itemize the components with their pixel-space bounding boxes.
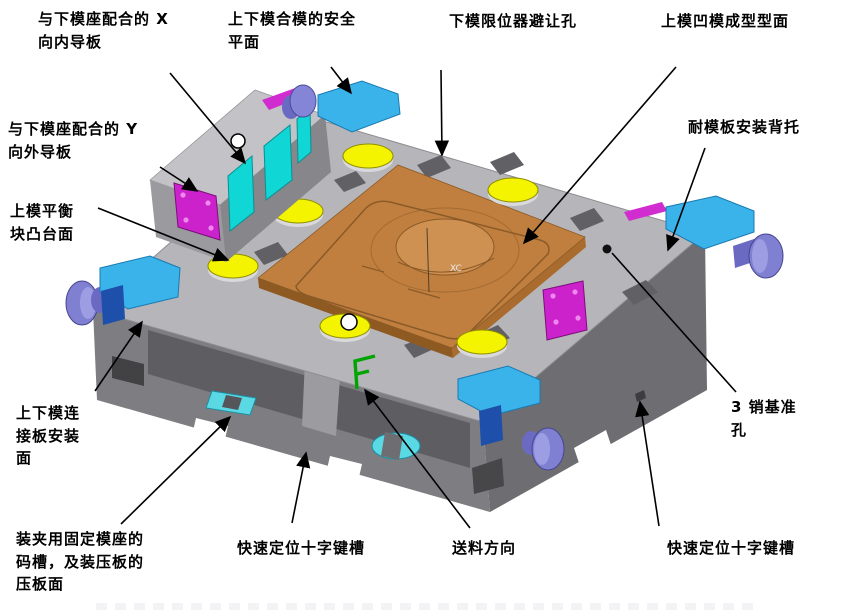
diagram-canvas: XC — [0, 0, 857, 613]
label-balance-block-boss: 上模平衡 块凸台面 — [10, 200, 74, 245]
label-pin-datum-holes: 3 销基准 孔 — [731, 396, 797, 441]
label-feed-direction: 送料方向 — [452, 537, 516, 560]
label-cross-keyway-left: 快速定位十字键槽 — [237, 537, 365, 560]
label-cross-keyway-right: 快速定位十字键槽 — [667, 537, 795, 560]
label-cavity-forming-surface: 上模凹模成型型面 — [661, 10, 789, 33]
label-limiter-clearance-hole: 下模限位器避让孔 — [449, 10, 577, 33]
cropped-caption-strip — [96, 603, 756, 610]
label-y-outer-guide: 与下模座配合的 Y 向外导板 — [8, 118, 138, 163]
label-connection-plate-mount: 上下模连 接板安装 面 — [16, 402, 80, 470]
label-clamp-slot: 装夹用固定模座的 码槽，及装压板的 压板面 — [16, 528, 144, 596]
label-wear-plate-backing: 耐模板安装背托 — [688, 116, 800, 139]
label-mold-closing-safety-plane: 上下模合模的安全 平面 — [228, 8, 356, 53]
callout-labels: 与下模座配合的 X 向内导板上下模合模的安全 平面下模限位器避让孔上模凹模成型型… — [0, 0, 857, 613]
label-x-inner-guide: 与下模座配合的 X 向内导板 — [38, 8, 169, 53]
